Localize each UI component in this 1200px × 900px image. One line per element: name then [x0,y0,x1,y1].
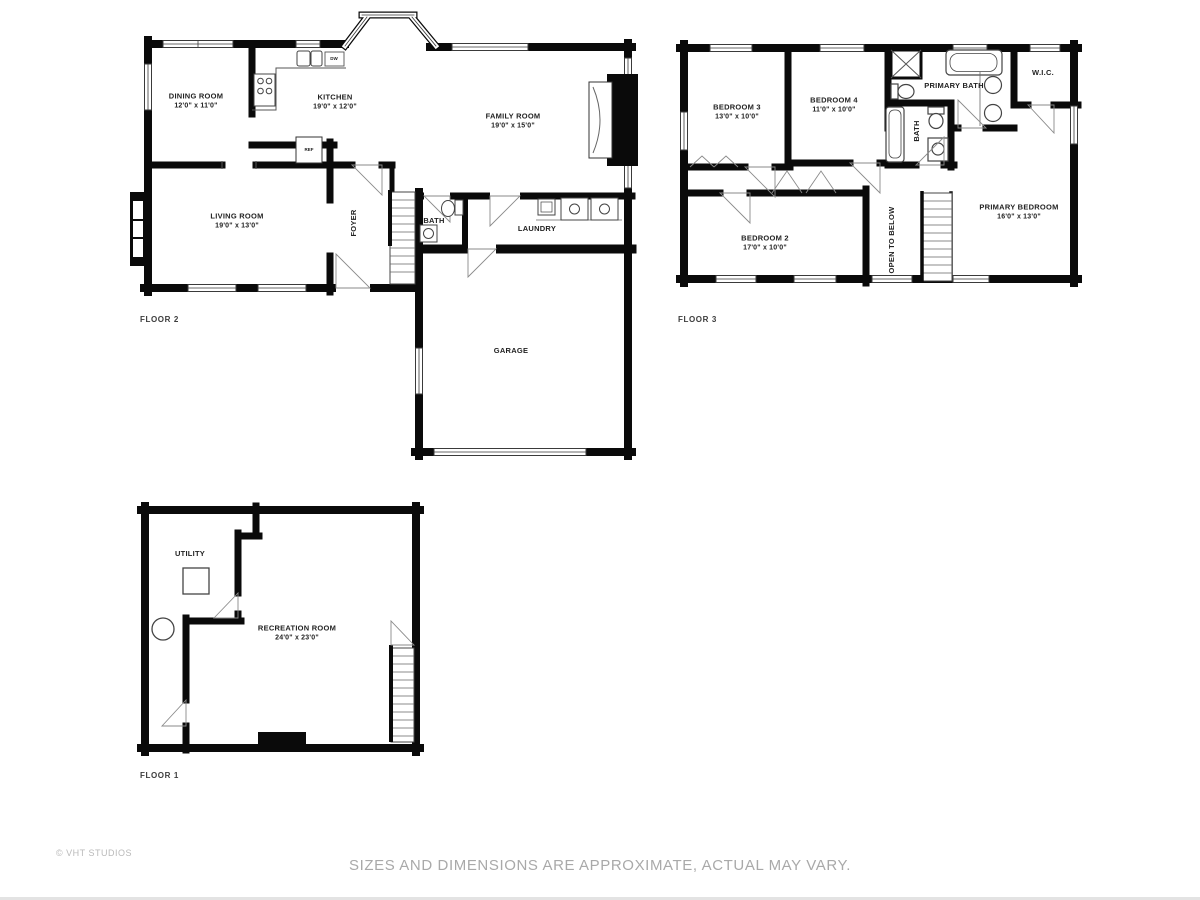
floor3-stairs [922,191,952,283]
bay-window-icon [345,15,436,46]
kitchen-sink-icon [297,51,310,66]
living-bay-window-icon [130,192,149,266]
room-label-ref: REF [305,147,314,153]
room-label-bedroom3: BEDROOM 3 13'0" x 10'0" [713,103,761,122]
toilet-icon [455,200,463,215]
shower-icon [891,50,921,78]
floor1-interior-walls [186,506,259,750]
utility-box-icon [183,568,209,594]
room-label-bath3: BATH [912,120,922,141]
floor3-drawing [670,30,1090,310]
sink-icon [985,105,1002,122]
floor1-wall-bump [258,732,306,748]
floor2-plan: DINING ROOM 12'0" x 11'0" KITCHEN 19'0" … [130,0,640,470]
room-label-garage: GARAGE [494,346,528,356]
toilet-icon [891,84,898,99]
room-label-open-to-below: OPEN TO BELOW [887,207,897,274]
floor2-caption: FLOOR 2 [140,315,179,324]
room-label-recreation: RECREATION ROOM 24'0" x 23'0" [258,624,336,643]
room-label-primary-bedroom: PRIMARY BEDROOM 16'0" x 13'0" [979,203,1058,222]
room-label-bedroom4: BEDROOM 4 11'0" x 10'0" [810,96,858,115]
floor1-plan: UTILITY RECREATION ROOM 24'0" x 23'0" [130,495,430,785]
room-label-bath2: BATH [423,216,444,226]
room-label-wic: W.I.C. [1032,68,1054,78]
sink-icon [985,77,1002,94]
sump-circle-icon [152,618,174,640]
floor1-fixtures [152,568,209,640]
room-label-family: FAMILY ROOM 19'0" x 15'0" [486,112,541,131]
floor2-doors [222,161,520,292]
laundry-fixtures [536,198,622,220]
floor2-stairs [390,190,415,284]
washer-icon [561,198,588,220]
room-label-primary-bath: PRIMARY BATH [924,81,984,91]
room-label-bedroom2: BEDROOM 2 17'0" x 10'0" [741,234,789,253]
floor1-caption: FLOOR 1 [140,771,179,780]
room-label-living: LIVING ROOM 19'0" x 13'0" [210,212,263,231]
floor1-doors [162,593,414,726]
room-label-utility: UTILITY [175,549,205,559]
floorplan-image: DINING ROOM 12'0" x 11'0" KITCHEN 19'0" … [0,0,1200,900]
floor1-stairs [391,645,414,742]
dimensions-disclaimer: SIZES AND DIMENSIONS ARE APPROXIMATE, AC… [0,857,1200,874]
sink-icon [420,225,437,242]
floor3-caption: FLOOR 3 [678,315,717,324]
floor3-plan: BEDROOM 3 13'0" x 10'0" BEDROOM 4 11'0" … [670,30,1090,310]
room-label-foyer: FOYER [349,209,359,236]
floor2-drawing [130,0,640,470]
fireplace-icon [589,74,638,166]
dryer-icon [591,198,618,220]
room-label-laundry: LAUNDRY [518,224,556,234]
room-label-dw: DW [330,56,338,62]
room-label-kitchen: KITCHEN 19'0" x 12'0" [313,93,357,112]
room-label-dining: DINING ROOM 12'0" x 11'0" [169,92,223,111]
